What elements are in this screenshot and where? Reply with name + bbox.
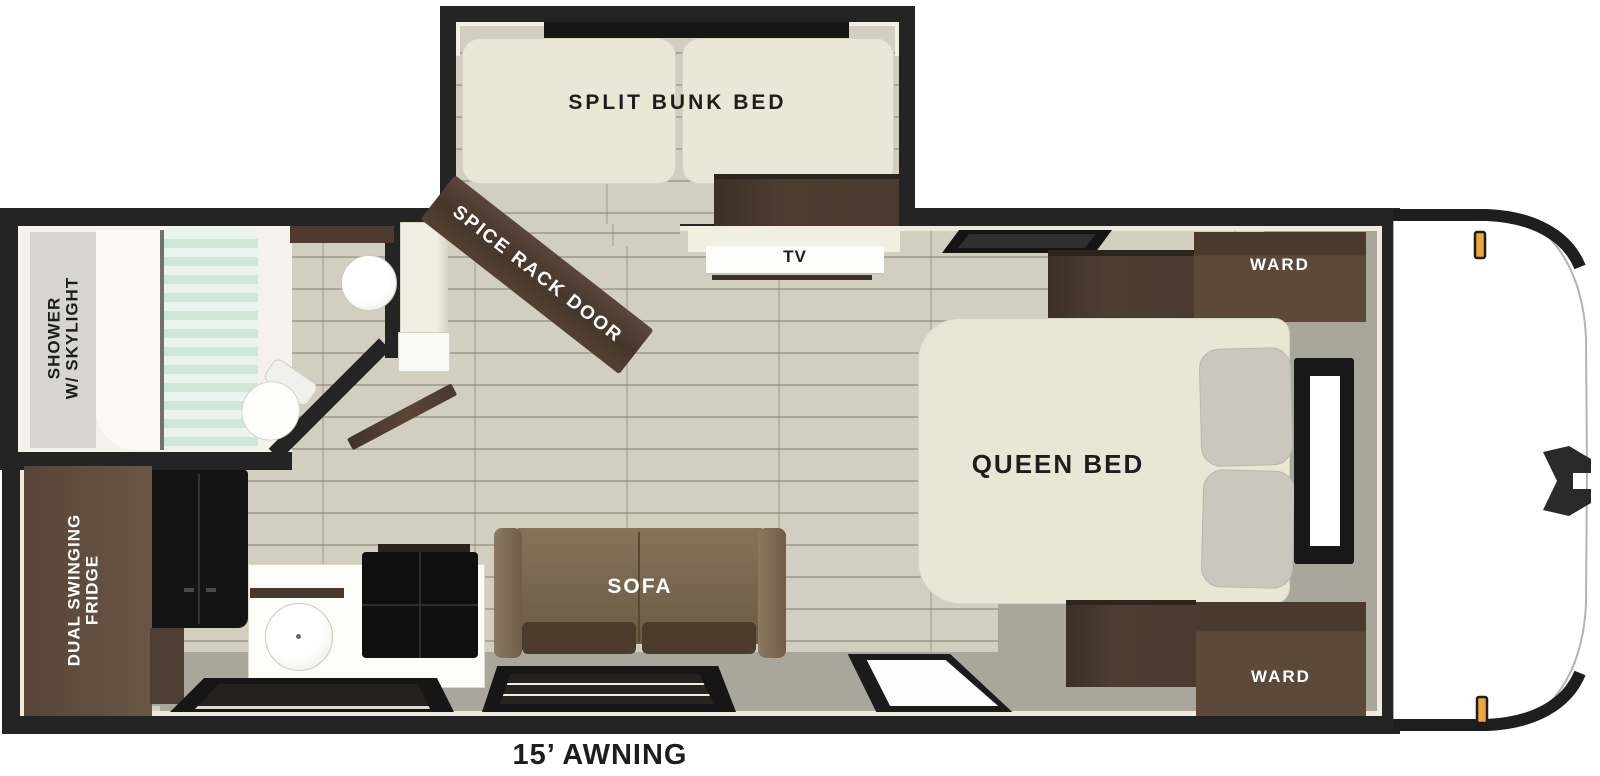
shower-label-line1: SHOWER	[45, 297, 64, 380]
sofa: SOFA	[494, 528, 786, 658]
stove-cooktop	[362, 552, 478, 658]
bedroom-side-window-glass	[1310, 376, 1340, 546]
wardrobe-top-label: WARD	[1194, 256, 1366, 274]
underbed-cabinet	[1066, 600, 1196, 687]
sofa-cushion-right	[642, 622, 756, 654]
kitchen-window-glass	[195, 684, 430, 709]
awning-label: 15’ AWNING	[400, 740, 800, 771]
bunk-slideout-box: SPLIT BUNK BED	[440, 6, 915, 224]
counter-back-edge	[250, 588, 344, 598]
bedroom-top-window-glass	[958, 234, 1096, 248]
floorplan-scene: SPLIT BUNK BED SHOWER W/ SKYLIGHT	[0, 0, 1600, 776]
fridge-label-line1: DUAL SWINGING	[65, 514, 84, 666]
kitchen-sink-drain	[296, 634, 301, 639]
shower-pan	[96, 230, 162, 450]
sofa-cushion-left	[522, 622, 636, 654]
vanity-sink	[341, 255, 397, 311]
sofa-label: SOFA	[494, 576, 786, 599]
pantry-cabinet	[400, 222, 448, 336]
fridge-doors	[152, 470, 248, 628]
wardrobe-top	[1194, 232, 1366, 322]
pantry-cabinet-base	[398, 332, 450, 372]
fridge-cabinet-base	[150, 628, 184, 704]
wardrobe-bottom-label: WARD	[1196, 668, 1366, 686]
bed-pillow-top	[1198, 347, 1293, 467]
bunk-label: SPLIT BUNK BED	[456, 92, 899, 115]
bunk-dresser	[714, 174, 899, 229]
sofa-window-glass	[500, 674, 714, 704]
wardrobe-bottom	[1196, 602, 1366, 716]
shower-label-line2: W/ SKYLIGHT	[63, 277, 82, 399]
queen-bed-label: QUEEN BED	[918, 450, 1198, 478]
overhead-cabinet	[1048, 250, 1194, 328]
tv-label: TV	[706, 248, 884, 266]
marker-light-bottom	[1477, 697, 1487, 723]
tv-shelf-shadow	[712, 275, 872, 280]
shower-label: SHOWER W/ SKYLIGHT	[46, 277, 83, 399]
fridge-label: DUAL SWINGING FRIDGE	[66, 514, 103, 666]
bed-pillow-bottom	[1200, 469, 1295, 589]
fridge-label-line2: FRIDGE	[83, 555, 102, 625]
vanity-counter	[290, 226, 394, 243]
front-cap	[1393, 205, 1600, 735]
marker-light-top	[1475, 232, 1485, 258]
fridge-handle-right	[206, 588, 216, 592]
fridge-door-seam	[198, 474, 200, 624]
fridge-handle-left	[184, 588, 194, 592]
bunk-window	[553, 22, 840, 38]
